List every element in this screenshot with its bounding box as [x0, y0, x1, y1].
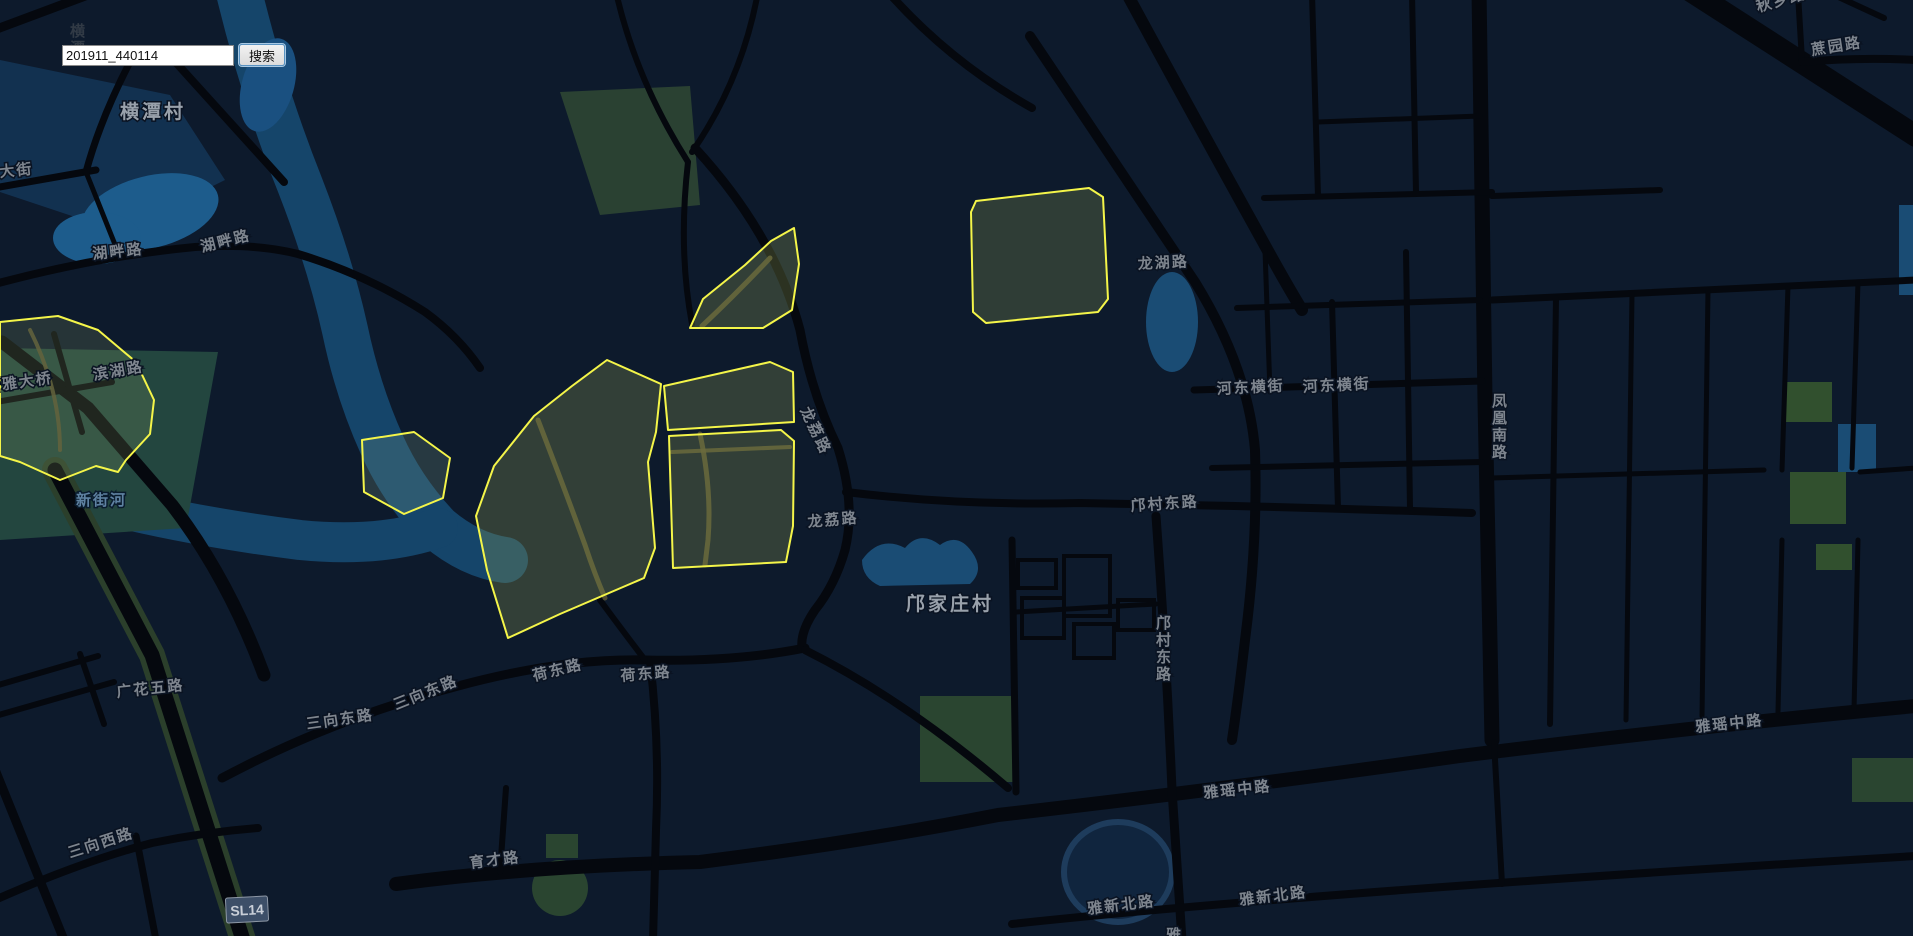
village-label: 横潭村 [120, 100, 186, 123]
road-label: 龙湖路 [1136, 252, 1189, 273]
village-label: 邝家庄村 [906, 592, 994, 615]
road-label: 凤凰南路 [1492, 393, 1509, 461]
road-label: 大街 [0, 160, 34, 181]
water-label: 新街河 [76, 491, 127, 509]
road-label: 河东横街 [1302, 374, 1371, 396]
parcel-outline[interactable] [669, 430, 794, 568]
highway-badge-text: SL14 [230, 901, 264, 919]
search-bar: 搜索 [62, 44, 285, 66]
map-container: 横潭村湖畔路湖畔路滨湖路新雅大桥大街新街河广花五路三向东路三向东路三向西路荷东路… [0, 0, 1913, 936]
map-canvas[interactable]: 横潭村湖畔路湖畔路滨湖路新雅大桥大街新街河广花五路三向东路三向东路三向西路荷东路… [0, 0, 1913, 936]
search-button[interactable]: 搜索 [239, 44, 285, 66]
road-label: 邝村东路 [1156, 614, 1173, 683]
road-label: 雅 [1165, 926, 1183, 936]
road-label: 河东横街 [1216, 376, 1285, 398]
highway-badge: SL14 [225, 896, 268, 923]
parcel-outline[interactable] [971, 188, 1108, 323]
search-input[interactable] [62, 45, 234, 66]
